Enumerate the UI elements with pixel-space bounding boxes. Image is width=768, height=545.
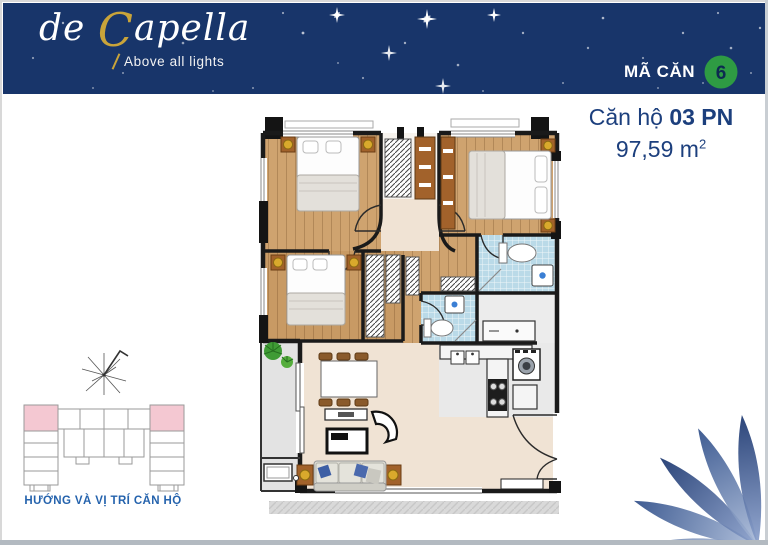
unit-code-value: 6 [716,63,727,84]
logo-gold-c: C [98,3,134,57]
master-bedroom-furniture [469,139,555,232]
window-top-master [451,129,515,137]
compass-icon [82,351,128,395]
header-banner: de Capella Above all lights MÃ CĂN 6 [3,3,765,94]
page-border-bottom [0,540,768,545]
highlighted-unit-left [24,405,58,431]
window-right-master [553,158,561,218]
laundry-counter [483,321,535,341]
unit-code-label: MÃ CĂN [624,62,695,82]
washing-machine-icon [513,349,540,380]
brand-tagline: Above all lights [115,53,250,70]
floor-plan [255,103,565,515]
window-left-bed1 [259,158,267,208]
unit-info: Căn hộ 03 PN 97,59 m2 [568,104,754,163]
key-plan-caption: HƯỚNG VÀ VỊ TRÍ CĂN HỘ [10,495,196,507]
highlighted-unit-right [150,405,184,431]
entry-step [501,479,543,489]
wic-hatch-1 [366,255,384,337]
unit-title: Căn hộ 03 PN [568,104,754,131]
brand-logo-text: de Capella [39,7,250,51]
wic-hatch-2 [386,255,400,303]
bottom-ledge-hatch [269,501,559,514]
page-border-top [0,0,768,2]
unit-code-badge: 6 [703,54,739,90]
hall-floor [381,199,439,251]
lotus-petals-motif [582,382,766,542]
corr-hatch-left [406,257,419,295]
key-plan [18,347,190,493]
window-left-bed3 [259,268,267,318]
balcony-slider-door [296,363,304,453]
tv-console [325,409,367,420]
window-top-bed1 [283,129,353,137]
building-outline [24,405,184,491]
closet-hatch-corridor [385,139,411,197]
brand-logo: de Capella Above all lights [39,7,250,70]
page: de Capella Above all lights MÃ CĂN 6 Căn… [0,0,768,545]
unit-area: 97,59 m2 [568,136,754,163]
corr-hatch-row [441,277,475,291]
sparkle-star-icons [329,7,501,94]
unit-code: MÃ CĂN 6 [624,54,739,90]
coffee-table [327,429,367,453]
page-border-left [0,0,2,545]
